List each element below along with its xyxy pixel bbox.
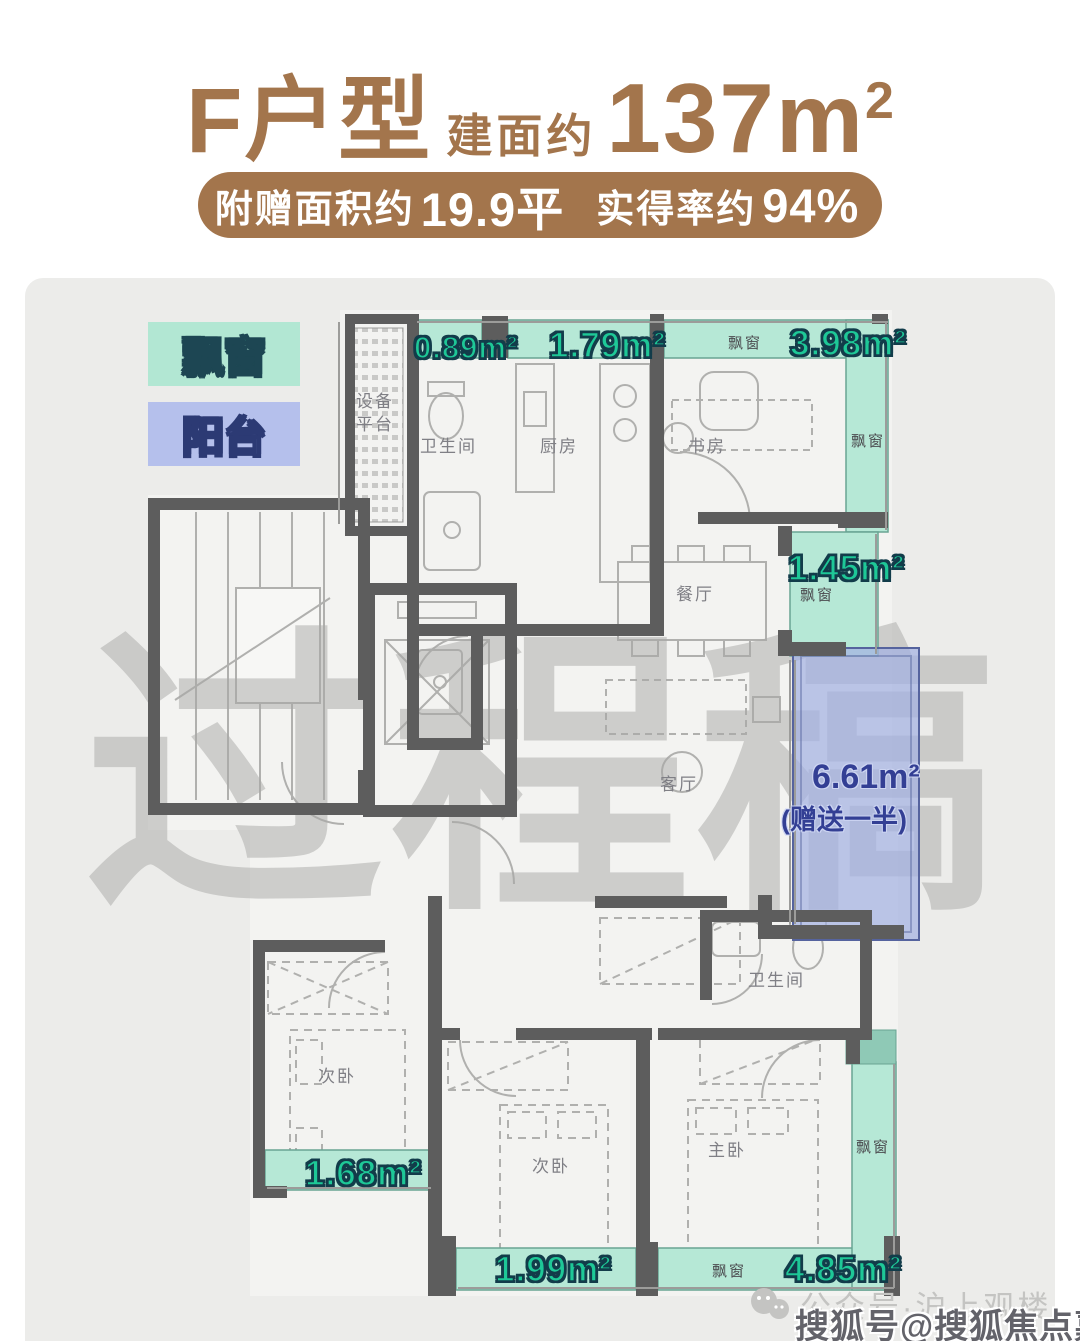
unit-type: F户型 [186,46,432,179]
area-label: 建面约 [446,100,596,166]
banner-text-2: 实得率约 [596,178,756,233]
bay-tag-mid-right: 飘窗 [800,584,834,605]
wechat-icon [748,1287,792,1323]
room-label-bathroom-1: 卫生间 [420,432,477,457]
bay-tag-bottom: 飘窗 [712,1260,746,1281]
room-label-bathroom-2: 卫生间 [748,966,805,991]
banner-value-2: 94% [762,178,859,233]
area-label-right-upper: 1.45m² [788,549,905,589]
page-title: F户型 建面约 137m 2 [0,46,1080,179]
bonus-area-banner: 附赠面积约 19.9平 实得率约 94% [198,172,882,238]
banner-value-1: 19.9平 [421,171,564,240]
legend-balcony-label: 阳台 [182,404,266,465]
room-label-living: 客厅 [660,770,698,795]
sohu-account-line: 搜狐号@搜狐焦点嘉峪关站 [795,1299,1080,1341]
room-label-bedroom-mid: 次卧 [532,1152,570,1177]
bay-tag-study-right: 飘窗 [851,430,885,451]
area-label-bottom-left: 1.68m² [305,1154,422,1194]
legend-balcony: 阳台 [148,402,300,466]
room-label-kitchen: 厨房 [540,432,578,457]
area-superscript: 2 [865,71,894,131]
room-label-bedroom-left: 次卧 [318,1062,356,1087]
area-label-top-right: 3.98m² [790,324,907,364]
area-value: 137m [606,62,865,175]
banner-text-1: 附赠面积约 [215,178,415,233]
room-label-study: 书房 [688,432,726,457]
bay-tag-master-right: 飘窗 [856,1136,890,1157]
legend-bay-window-label: 飘窗 [182,324,266,385]
room-label-master: 主卧 [708,1136,746,1161]
room-label-dining: 餐厅 [676,580,714,605]
room-label-equipment-platform: 设备平台 [352,390,398,436]
balcony-note-label: (赠送一半) [781,798,907,837]
legend-bay-window: 飘窗 [148,322,300,386]
area-label-top-left: 0.89m² [414,330,518,366]
area-label-bottom-mid: 1.99m² [495,1250,612,1290]
balcony-area-label: 6.61m² [812,758,920,797]
area-label-top-mid: 1.79m² [549,326,666,366]
bay-tag-top: 飘窗 [728,332,762,353]
screenshot-root: F户型 建面约 137m 2 附赠面积约 19.9平 实得率约 94% [0,0,1080,1341]
